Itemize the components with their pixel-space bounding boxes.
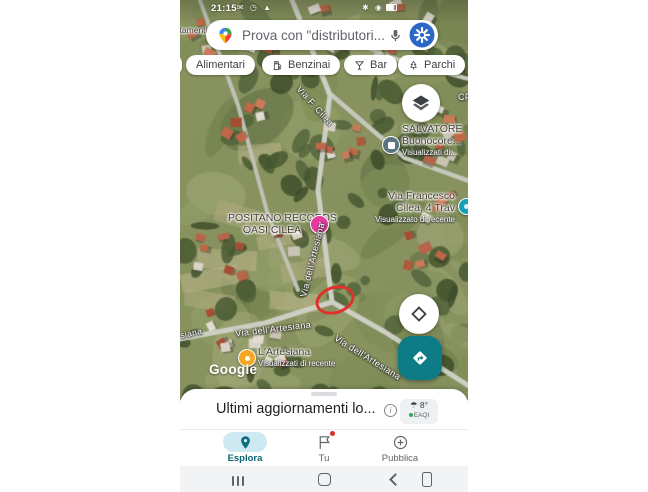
chip-parchi-label: Parchi <box>424 59 455 71</box>
search-bar[interactable]: Prova con "distributori... <box>206 20 438 50</box>
status-bar: 21:15 ✉ ◷ ▲ ✱ ◉ <box>180 0 468 16</box>
esplora-active-pill <box>223 432 267 452</box>
cocktail-icon <box>354 60 365 71</box>
poi-artesiana-line1: L'Artesiana <box>258 346 310 358</box>
tab-tu-label: Tu <box>289 453 359 464</box>
fuel-icon <box>272 60 283 71</box>
recents-button[interactable] <box>230 473 245 491</box>
bottom-sheet[interactable]: Ultimi aggiornamenti lo... i ☂ 8° EAQI <box>180 389 468 429</box>
poi-francesco-sub: Visualizzato di recente <box>375 214 455 226</box>
android-nav-bar <box>180 466 468 492</box>
directions-icon <box>409 347 431 369</box>
restaurant-icon <box>245 356 250 361</box>
tab-pubblica[interactable]: Pubblica <box>365 432 435 464</box>
google-maps-pin-icon <box>217 27 234 44</box>
notification-dot <box>330 431 335 436</box>
poi-salvatore-sub: Visualizzati di... <box>402 147 463 159</box>
bus-icon <box>388 142 395 149</box>
chip-benzinai[interactable]: Benzinai <box>262 55 340 75</box>
temperature: 8° <box>420 400 428 410</box>
poi-positano-records[interactable]: POSITANO RECORDS OASI CILEA <box>228 212 316 236</box>
poi-via-francesco[interactable]: Via Francesco Cilea, 4 Trav Visualizzato… <box>375 190 455 226</box>
poi-positano-line2: OASI CILEA <box>243 224 301 236</box>
phone-screen: artamenti Via F. Cilea CP SALVATORE Buon… <box>180 0 468 492</box>
tab-esplora-label: Esplora <box>210 453 280 464</box>
category-chips: Alimentari Benzinai Bar <box>180 55 468 77</box>
poi-artesiana-sub: Visualizzati di recente <box>258 358 335 370</box>
weather-widget[interactable]: ☂ 8° EAQI <box>400 399 438 424</box>
add-circle-icon <box>392 434 409 451</box>
chip-alimentari-label: Alimentari <box>196 59 245 71</box>
layers-button[interactable] <box>402 84 440 122</box>
tab-esplora[interactable]: Esplora <box>210 432 280 464</box>
chip-benzinai-label: Benzinai <box>288 59 330 71</box>
google-watermark: Google <box>209 362 257 377</box>
poi-francesco-line2: Cilea, 4 Trav <box>396 202 455 214</box>
home-button[interactable] <box>318 473 331 486</box>
chip-bar-label: Bar <box>370 59 387 71</box>
sheet-title: Ultimi aggiornamenti lo... <box>216 401 376 417</box>
my-location-button[interactable] <box>399 294 439 334</box>
info-icon[interactable]: i <box>384 404 397 417</box>
clock: 21:15 <box>211 3 237 14</box>
compass-icon <box>408 303 430 325</box>
poi-artesiana[interactable]: L'Artesiana Visualizzati di recente <box>258 346 335 370</box>
weather-temp: ☂ 8° <box>400 399 438 411</box>
air-quality: EAQI <box>400 411 438 421</box>
tab-pubblica-label: Pubblica <box>365 453 435 464</box>
poi-salvatore-line1: SALVATORE <box>402 123 463 135</box>
status-glyphs: ✱ ◉ <box>362 3 384 12</box>
sheet-drag-handle[interactable] <box>311 392 337 396</box>
recent-place-marker[interactable] <box>458 198 468 215</box>
bus-stop-marker[interactable] <box>382 136 400 154</box>
device-button[interactable] <box>422 472 432 487</box>
bottom-navigation: Esplora Tu Pu <box>180 429 468 467</box>
chip-partial-left[interactable] <box>180 55 182 75</box>
mic-icon[interactable] <box>388 28 403 43</box>
poi-salvatore-line2: Buonocore... <box>402 135 462 147</box>
recent-place-dot <box>464 204 468 209</box>
chip-parchi[interactable]: Parchi <box>398 55 465 75</box>
aqi-dot <box>409 413 413 417</box>
notification-icons: ✉ ◷ ▲ <box>237 3 273 12</box>
screenshot: artamenti Via F. Cilea CP SALVATORE Buon… <box>0 0 648 492</box>
back-button[interactable] <box>391 473 400 484</box>
contribute-flag-icon <box>316 434 333 451</box>
street-label-fragment-right: CP <box>458 92 468 102</box>
map-label-fragment: artamenti <box>180 24 207 36</box>
layers-icon <box>411 93 431 113</box>
chip-bar[interactable]: Bar <box>344 55 397 75</box>
account-avatar[interactable] <box>409 22 435 48</box>
poi-francesco-line1: Via Francesco <box>388 190 455 202</box>
map-pin-icon <box>238 435 253 450</box>
tree-icon <box>408 60 419 71</box>
battery-icon <box>386 4 397 11</box>
poi-salvatore[interactable]: SALVATORE Buonocore... Visualizzati di..… <box>402 123 463 159</box>
chip-alimentari[interactable]: Alimentari <box>186 55 255 75</box>
tab-tu[interactable]: Tu <box>289 432 359 464</box>
aqi-label: EAQI <box>414 412 430 419</box>
system-status-icons: ✱ ◉ <box>362 3 397 12</box>
directions-fab[interactable] <box>398 336 442 380</box>
search-input[interactable]: Prova con "distributori... <box>242 28 388 43</box>
